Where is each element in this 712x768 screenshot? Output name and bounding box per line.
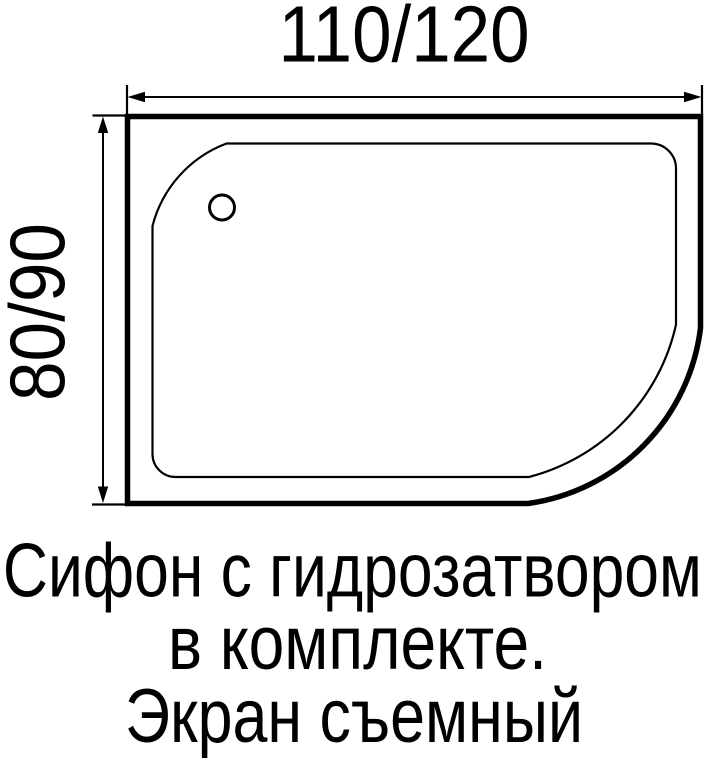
- svg-text:Экран съемный: Экран съемный: [125, 674, 583, 759]
- svg-text:80/90: 80/90: [0, 223, 81, 401]
- svg-text:110/120: 110/120: [279, 0, 530, 79]
